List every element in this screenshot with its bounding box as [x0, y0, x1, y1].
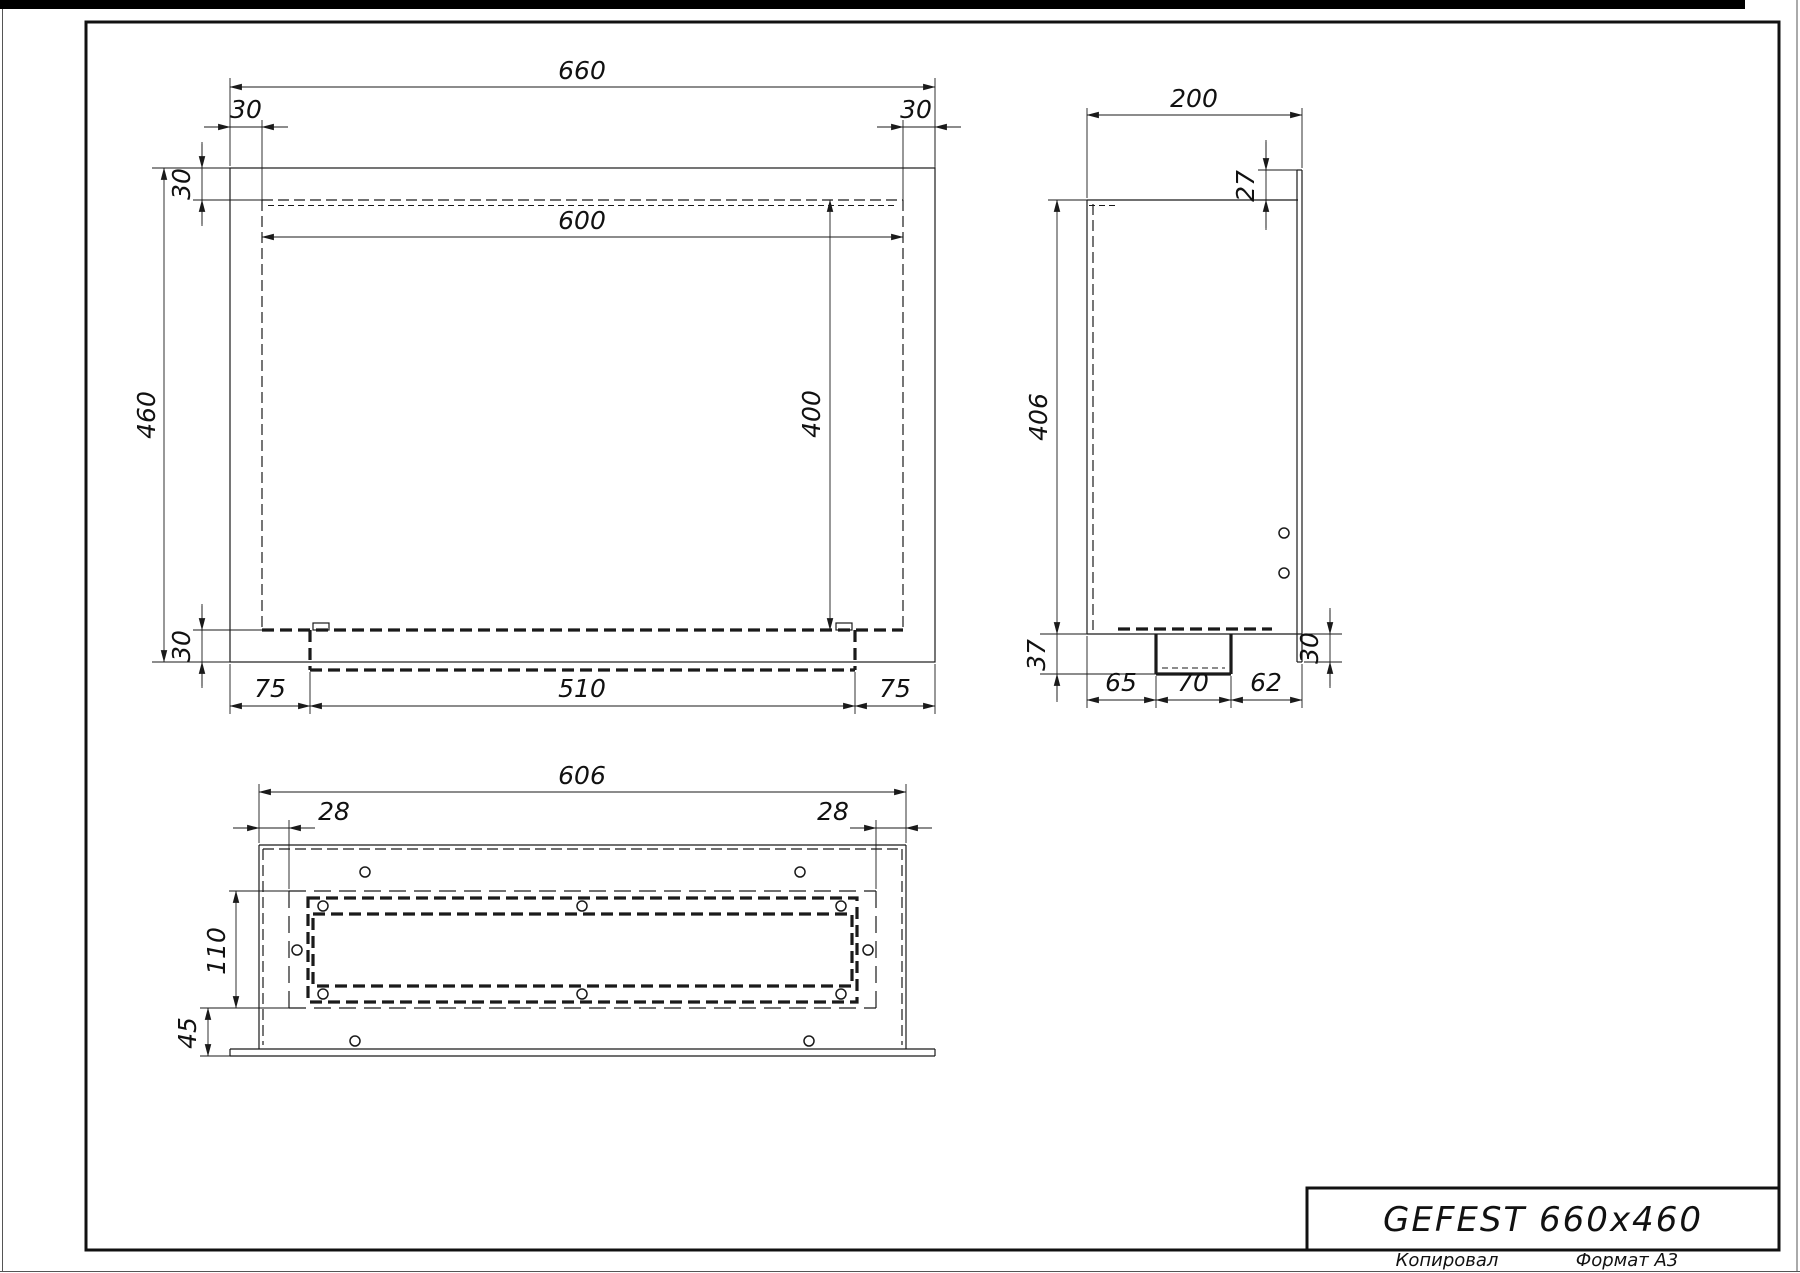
dim-front-left-margin: 30 — [230, 95, 262, 124]
dim-front-right-margin: 30 — [900, 95, 932, 124]
dim-bottom-width: 606 — [558, 761, 606, 790]
title-block: GEFEST 660x460 Копировал Формат A3 — [1307, 1188, 1779, 1271]
format-label: Формат A3 — [1576, 1250, 1679, 1271]
drawing-frame — [86, 22, 1779, 1250]
dim-side-flange-bottom: 30 — [1295, 632, 1324, 664]
dim-side-tray-drop: 37 — [1022, 639, 1051, 671]
copied-label: Копировал — [1396, 1250, 1499, 1271]
dim-front-height: 460 — [132, 391, 161, 439]
dim-side-height: 406 — [1024, 393, 1053, 441]
dim-front-tray-width: 510 — [558, 674, 606, 703]
dim-bottom-right-margin: 28 — [817, 797, 849, 826]
dim-side-seg-mid: 70 — [1177, 668, 1209, 697]
technical-drawing: 660 30 30 600 460 30 400 — [0, 0, 1800, 1273]
dim-side-seg-left: 65 — [1105, 668, 1137, 697]
dim-front-opening-height: 400 — [797, 390, 826, 438]
dim-side-depth: 200 — [1170, 84, 1218, 113]
drawing-sheet: 660 30 30 600 460 30 400 — [0, 0, 1800, 1273]
side-view: 200 27 406 37 65 70 62 30 — [1022, 84, 1342, 708]
dim-side-seg-right: 62 — [1250, 668, 1282, 697]
dim-front-opening-width: 600 — [558, 206, 606, 235]
title-block-product: GEFEST 660x460 — [1383, 1200, 1703, 1240]
dim-front-top-border: 30 — [167, 168, 196, 200]
dim-front-tray-left: 75 — [254, 674, 286, 703]
dim-front-width: 660 — [558, 56, 606, 85]
dim-bottom-opening-depth: 110 — [202, 927, 231, 975]
page-edges — [0, 0, 1800, 1272]
dim-bottom-front-offset: 45 — [173, 1017, 202, 1049]
dim-bottom-left-margin: 28 — [318, 797, 350, 826]
dim-front-tray-right: 75 — [879, 674, 911, 703]
dim-front-bottom-border: 30 — [167, 630, 196, 662]
front-view: 660 30 30 600 460 30 400 — [132, 56, 961, 714]
bottom-view: 606 28 28 110 45 — [173, 761, 935, 1056]
dim-side-flange-top: 27 — [1231, 170, 1260, 202]
